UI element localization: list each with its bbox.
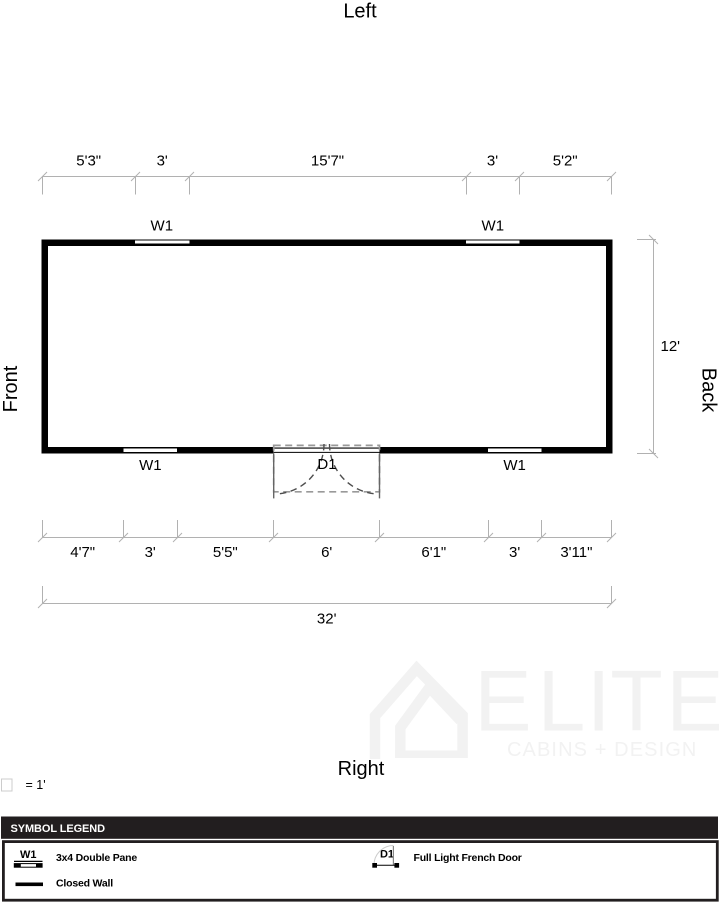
svg-text:W1: W1 xyxy=(20,849,37,861)
svg-text:4'7": 4'7" xyxy=(70,544,95,561)
svg-text:T: T xyxy=(610,654,663,750)
svg-text:3': 3' xyxy=(145,544,156,561)
svg-text:CABINS + DESIGN: CABINS + DESIGN xyxy=(507,739,697,761)
svg-text:D1: D1 xyxy=(317,456,336,473)
svg-text:3': 3' xyxy=(509,544,520,561)
svg-text:Back: Back xyxy=(698,368,719,413)
svg-text:3': 3' xyxy=(157,153,168,170)
svg-text:5'3": 5'3" xyxy=(76,153,101,170)
svg-text:E: E xyxy=(666,654,719,750)
svg-text:3': 3' xyxy=(487,153,498,170)
svg-text:Right: Right xyxy=(338,758,385,780)
svg-text:Left: Left xyxy=(343,0,377,22)
svg-text:6'1": 6'1" xyxy=(421,544,446,561)
svg-text:32': 32' xyxy=(317,611,337,628)
svg-text:6': 6' xyxy=(321,544,332,561)
svg-text:D1: D1 xyxy=(380,849,394,861)
svg-text:SYMBOL LEGEND: SYMBOL LEGEND xyxy=(11,823,106,835)
svg-text:W1: W1 xyxy=(139,457,162,474)
svg-text:W1: W1 xyxy=(482,218,505,235)
svg-text:5'2": 5'2" xyxy=(553,153,578,170)
svg-text:15'7": 15'7" xyxy=(311,153,344,170)
svg-text:I: I xyxy=(587,654,611,750)
svg-text:Full Light French Door: Full Light French Door xyxy=(414,852,522,864)
svg-text:W1: W1 xyxy=(503,457,526,474)
svg-text:L: L xyxy=(538,654,586,750)
svg-text:3x4 Double Pane: 3x4 Double Pane xyxy=(56,852,137,864)
svg-text:3'11": 3'11" xyxy=(560,544,592,561)
svg-text:E: E xyxy=(474,654,531,750)
svg-text:12': 12' xyxy=(661,338,681,355)
svg-text:W1: W1 xyxy=(151,218,174,235)
svg-text:= 1': = 1' xyxy=(26,778,46,792)
svg-text:Front: Front xyxy=(0,365,22,412)
svg-text:Closed Wall: Closed Wall xyxy=(56,878,113,890)
svg-text:5'5": 5'5" xyxy=(213,544,238,561)
